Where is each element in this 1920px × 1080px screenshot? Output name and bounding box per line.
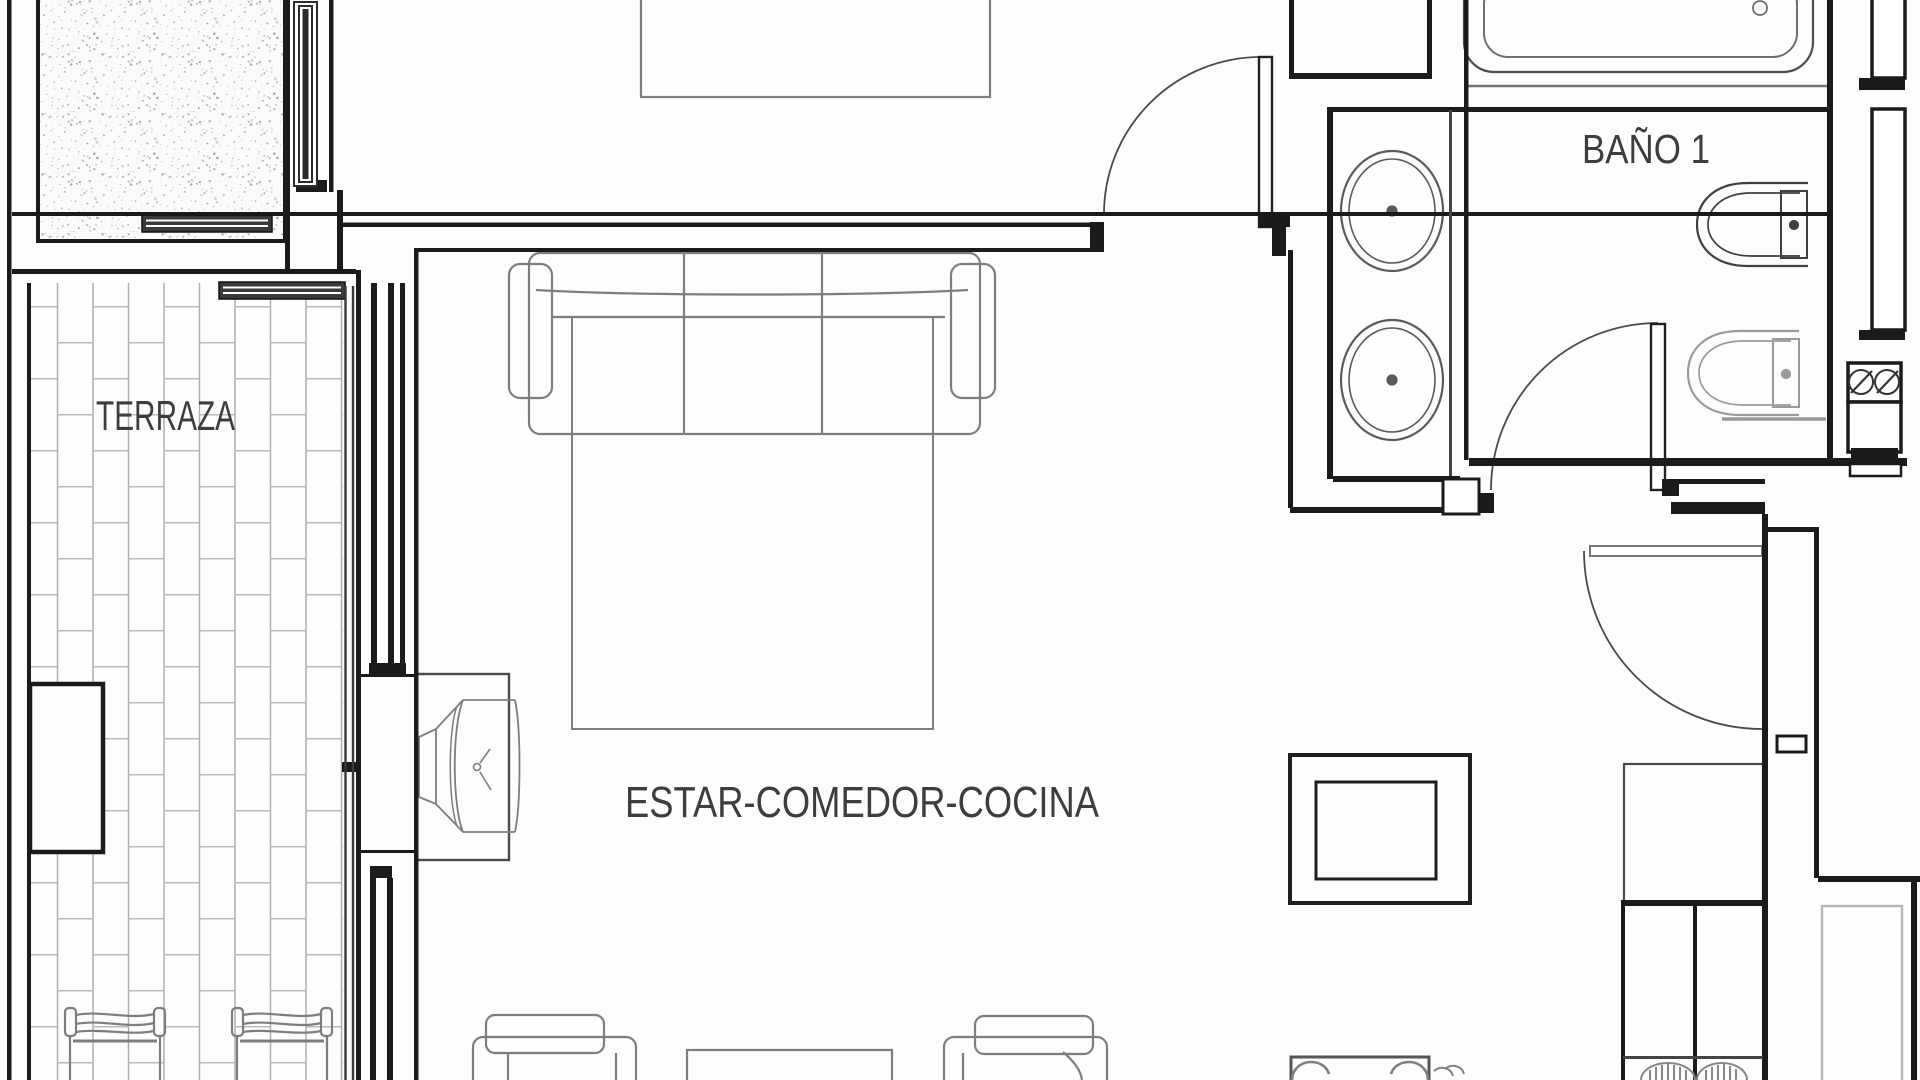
svg-text:TERRAZA: TERRAZA xyxy=(96,392,235,439)
svg-text:ESTAR-COMEDOR-COCINA: ESTAR-COMEDOR-COCINA xyxy=(625,778,1100,827)
svg-text:BAÑO 1: BAÑO 1 xyxy=(1582,126,1710,172)
